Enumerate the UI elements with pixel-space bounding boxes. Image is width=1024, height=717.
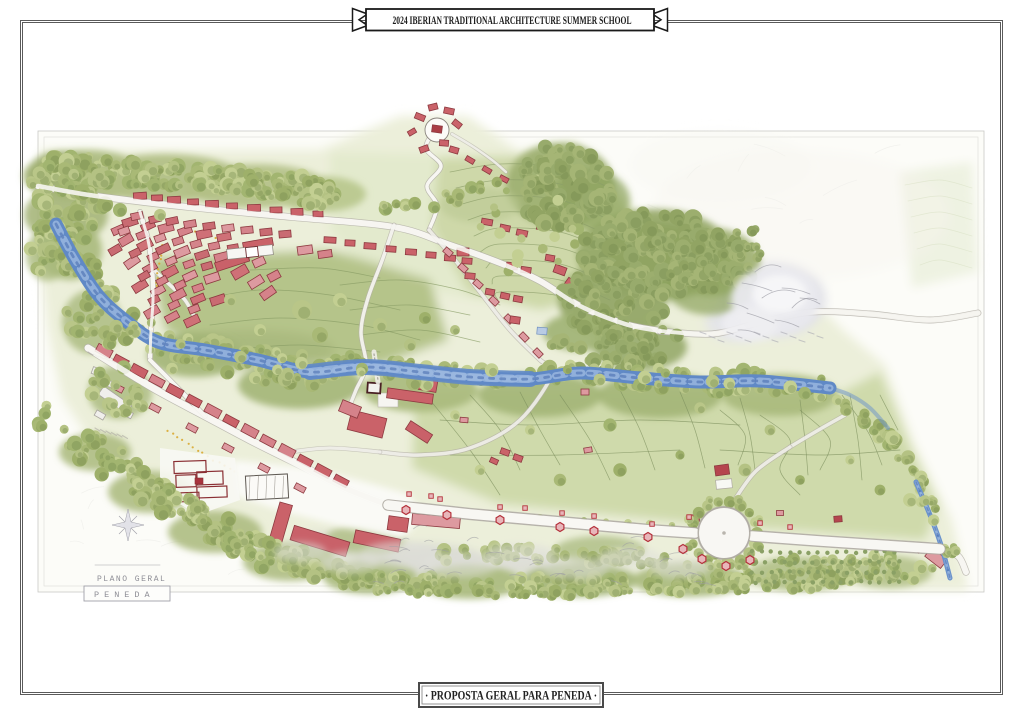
- svg-text:PENEDA: PENEDA: [94, 590, 155, 600]
- svg-text:2024 IBERIAN TRADITIONAL ARCHI: 2024 IBERIAN TRADITIONAL ARCHITECTURE SU…: [393, 15, 632, 27]
- svg-text:· PROPOSTA GERAL PARA PENEDA ·: · PROPOSTA GERAL PARA PENEDA ·: [425, 689, 597, 703]
- svg-text:PLANO GERAL: PLANO GERAL: [97, 575, 166, 584]
